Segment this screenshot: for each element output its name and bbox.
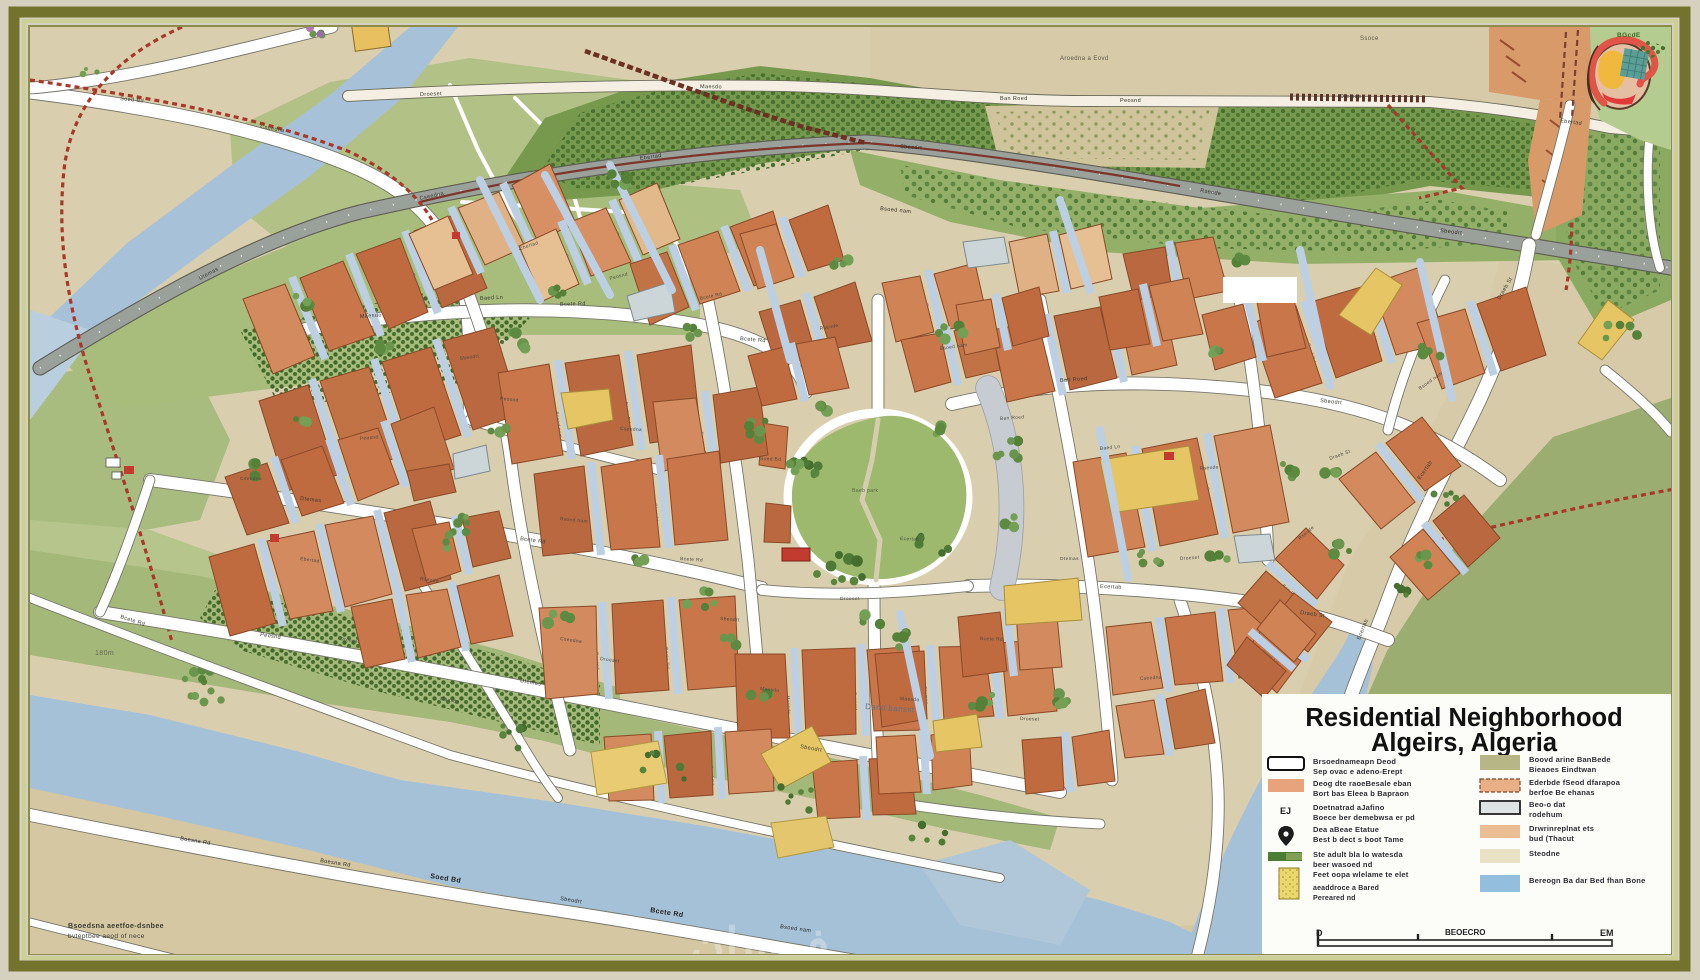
svg-text:Bort bas Eleea b Bapraon: Bort bas Eleea b Bapraon [1313, 789, 1409, 798]
svg-text:Ecertab: Ecertab [900, 536, 920, 543]
svg-text:Soed Bd: Soed Bd [760, 456, 781, 463]
svg-text:Residential Neighborhood: Residential Neighborhood [1305, 704, 1622, 732]
svg-text:Peosnd: Peosnd [1120, 98, 1141, 104]
svg-text:bud (Thacut: bud (Thacut [1529, 834, 1574, 843]
svg-text:Beo-o dat: Beo-o dat [1529, 800, 1566, 809]
svg-text:Baed Ln: Baed Ln [480, 295, 504, 302]
svg-text:Droeset: Droeset [420, 91, 442, 98]
svg-text:EM: EM [1600, 928, 1614, 938]
svg-text:bvteptbee aeod of nece: bvteptbee aeod of nece [68, 933, 145, 940]
svg-text:beer wasoed nd: beer wasoed nd [1313, 860, 1373, 869]
svg-text:Ederbde fSeod dfarapoa: Ederbde fSeod dfarapoa [1529, 778, 1621, 787]
svg-text:Dtemas: Dtemas [1340, 94, 1361, 100]
svg-text:Bieaoes Eindtwan: Bieaoes Eindtwan [1529, 765, 1597, 774]
svg-text:Bsoedsna aeetfoe-dsnbee: Bsoedsna aeetfoe-dsnbee [68, 923, 164, 930]
svg-text:Bcete Rd: Bcete Rd [560, 301, 586, 308]
svg-text:D: D [1316, 928, 1323, 938]
svg-text:Ecertab: Ecertab [1100, 584, 1122, 591]
svg-text:aeaddroce a Bared: aeaddroce a Bared [1313, 885, 1379, 892]
svg-text:Cseedna: Cseedna [240, 476, 262, 482]
svg-text:Steodne: Steodne [1529, 849, 1560, 858]
svg-text:Bcete Rd: Bcete Rd [980, 636, 1003, 643]
svg-text:Brsoednameapn Deod: Brsoednameapn Deod [1313, 757, 1396, 766]
svg-text:Feet oopa wlelame te elet: Feet oopa wlelame te elet [1313, 870, 1409, 879]
svg-text:Ste adult bla lo watesda: Ste adult bla lo watesda [1313, 850, 1403, 859]
svg-text:180m: 180m [95, 650, 114, 657]
svg-text:Ssoce: Ssoce [1360, 36, 1379, 42]
svg-text:Doetnatrad aJafino: Doetnatrad aJafino [1313, 803, 1385, 812]
svg-text:rodehum: rodehum [1529, 810, 1563, 819]
svg-text:Dtemas: Dtemas [1060, 556, 1079, 562]
svg-text:Baeb park: Baeb park [852, 488, 878, 494]
svg-text:Maesdo: Maesdo [700, 84, 722, 90]
svg-text:Pereared nd: Pereared nd [1313, 895, 1356, 902]
svg-text:Deog dte raoeBesale eban: Deog dte raoeBesale eban [1313, 779, 1412, 788]
svg-text:Droeset: Droeset [1020, 716, 1040, 723]
svg-text:berfoe Be ehanas: berfoe Be ehanas [1529, 788, 1595, 797]
svg-text:BEOECRO: BEOECRO [1445, 928, 1485, 937]
svg-text:EJ: EJ [1280, 806, 1291, 816]
svg-text:Best b dect s boot Tame: Best b dect s boot Tame [1313, 835, 1404, 844]
svg-text:Aroedna a Eovd: Aroedna a Eovd [1060, 56, 1109, 62]
svg-text:Sep ovac e adeno-Erept: Sep ovac e adeno-Erept [1313, 767, 1403, 776]
svg-text:Drwrinreplnat ets: Drwrinreplnat ets [1529, 824, 1594, 833]
svg-text:Algeirs, Algeria: Algeirs, Algeria [1371, 729, 1558, 757]
svg-text:Boece ber demebwsa er pd: Boece ber demebwsa er pd [1313, 813, 1415, 822]
svg-text:Bereogn Ba dar Bed fhan Bone: Bereogn Ba dar Bed fhan Bone [1529, 876, 1645, 885]
svg-text:Cseedna: Cseedna [620, 426, 642, 433]
svg-text:Droeset: Droeset [840, 596, 860, 602]
svg-text:Dea aBeae Etatue: Dea aBeae Etatue [1313, 825, 1379, 834]
svg-text:Ban Roed: Ban Roed [1000, 96, 1028, 102]
svg-text:Boovd arine BanBede: Boovd arine BanBede [1529, 755, 1611, 764]
svg-text:BGcdE: BGcdE [1617, 32, 1641, 39]
